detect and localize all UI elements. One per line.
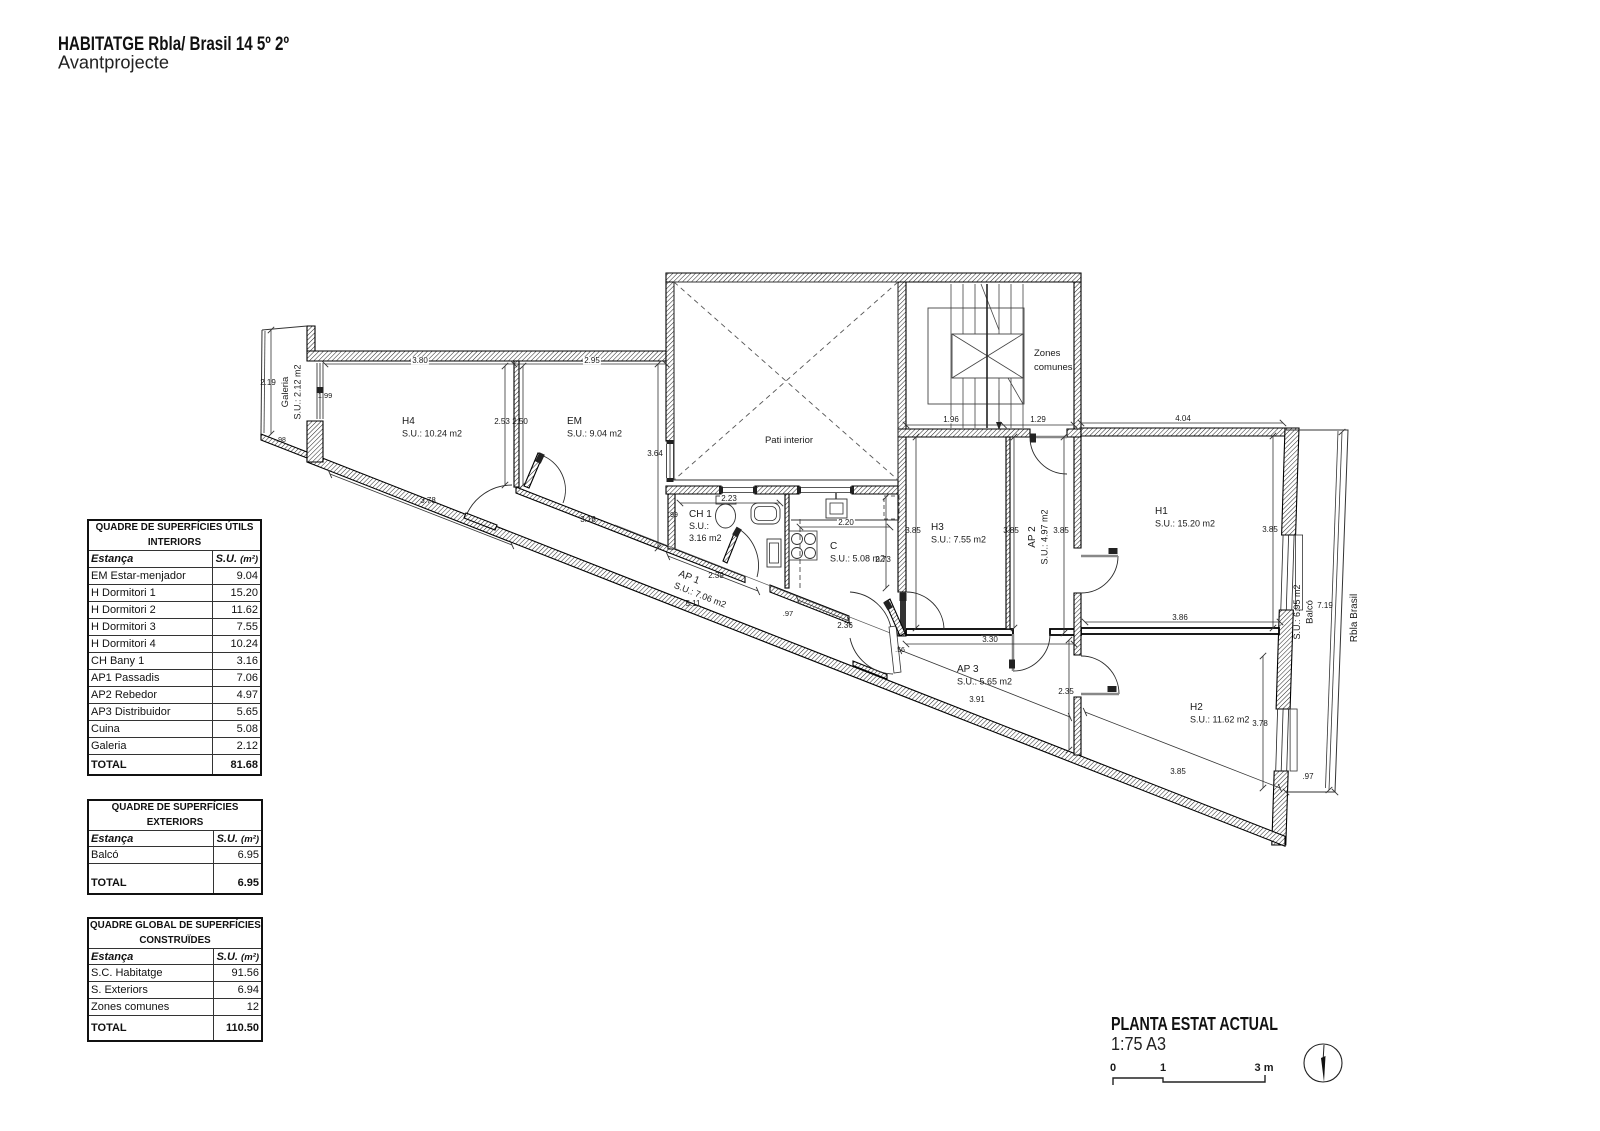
svg-text:.98: .98 — [276, 437, 286, 444]
svg-text:S.U.: 9.04 m2: S.U.: 9.04 m2 — [567, 429, 622, 439]
svg-text:.97: .97 — [1302, 772, 1314, 781]
svg-text:CH 1: CH 1 — [689, 509, 712, 520]
svg-text:Balcó: Balcó — [1305, 600, 1316, 624]
svg-text:S.U.: 4.97 m2: S.U.: 4.97 m2 — [1040, 509, 1050, 564]
svg-text:2.19: 2.19 — [260, 378, 276, 387]
svg-text:1.99: 1.99 — [318, 391, 333, 400]
svg-text:2.20: 2.20 — [838, 518, 854, 527]
svg-text:AP 2: AP 2 — [1027, 526, 1038, 548]
svg-text:2.95: 2.95 — [584, 356, 600, 365]
svg-text:4.04: 4.04 — [1175, 414, 1191, 423]
svg-text:.56: .56 — [895, 647, 905, 654]
svg-text:1:75 A3: 1:75 A3 — [1111, 1033, 1166, 1054]
svg-text:3.85: 3.85 — [1053, 526, 1069, 535]
svg-text:3.78: 3.78 — [1252, 719, 1268, 728]
svg-text:EM: EM — [567, 416, 582, 427]
svg-text:1.96: 1.96 — [943, 415, 959, 424]
svg-text:S.U.: 5.08 m2: S.U.: 5.08 m2 — [830, 554, 885, 564]
svg-text:3.16 m2: 3.16 m2 — [689, 533, 722, 543]
svg-text:2.53: 2.53 — [494, 417, 510, 426]
svg-text:3 m: 3 m — [1255, 1062, 1274, 1074]
svg-text:S.U.:: S.U.: — [689, 521, 709, 531]
svg-text:S.U.: 11.62 m2: S.U.: 11.62 m2 — [1190, 715, 1249, 725]
svg-text:comunes: comunes — [1034, 362, 1073, 373]
svg-text:Zones: Zones — [1034, 348, 1061, 359]
svg-text:3.64: 3.64 — [647, 449, 663, 458]
svg-text:0: 0 — [1110, 1062, 1116, 1074]
svg-text:Galeria: Galeria — [280, 376, 291, 407]
svg-text:.97: .97 — [783, 609, 793, 618]
svg-text:7.19: 7.19 — [1317, 601, 1333, 610]
svg-text:3.91: 3.91 — [969, 695, 985, 704]
svg-text:3.30: 3.30 — [982, 635, 998, 644]
svg-text:2.39: 2.39 — [708, 571, 724, 580]
svg-text:S.U.: 5.65 m2: S.U.: 5.65 m2 — [957, 677, 1012, 687]
svg-text:S.U.: 10.24 m2: S.U.: 10.24 m2 — [402, 429, 462, 439]
svg-text:S.U.: 2.12 m2: S.U.: 2.12 m2 — [293, 364, 303, 419]
svg-text:3.85: 3.85 — [1262, 525, 1278, 534]
svg-text:3.86: 3.86 — [1172, 613, 1188, 622]
svg-text:H3: H3 — [931, 522, 944, 533]
svg-text:Avantprojecte: Avantprojecte — [58, 53, 169, 73]
svg-text:3.16: 3.16 — [580, 515, 596, 524]
svg-text:1.29: 1.29 — [1030, 415, 1046, 424]
svg-text:1: 1 — [1160, 1062, 1166, 1074]
svg-text:AP 3: AP 3 — [957, 664, 979, 675]
svg-text:H2: H2 — [1190, 702, 1203, 713]
svg-text:3.85: 3.85 — [1170, 767, 1186, 776]
svg-text:3.85: 3.85 — [1003, 526, 1019, 535]
svg-text:H4: H4 — [402, 416, 415, 427]
svg-text:Rbla Brasil: Rbla Brasil — [1349, 594, 1360, 642]
svg-text:S.U.: 7.55 m2: S.U.: 7.55 m2 — [931, 535, 986, 545]
svg-text:2.36: 2.36 — [837, 621, 853, 630]
svg-text:2.35: 2.35 — [1058, 687, 1074, 696]
svg-text:3.80: 3.80 — [412, 356, 428, 365]
svg-text:C: C — [830, 541, 837, 552]
svg-text:S.U.: 15.20 m2: S.U.: 15.20 m2 — [1155, 519, 1215, 529]
svg-text:Pati interior: Pati interior — [765, 435, 813, 446]
svg-text:2.50: 2.50 — [512, 417, 528, 426]
svg-text:3.78: 3.78 — [420, 496, 436, 505]
svg-text:PLANTA ESTAT ACTUAL: PLANTA ESTAT ACTUAL — [1111, 1013, 1278, 1034]
svg-text:5.11: 5.11 — [686, 599, 702, 608]
svg-text:3.85: 3.85 — [905, 526, 921, 535]
svg-text:2.23: 2.23 — [721, 494, 737, 503]
svg-text:S.U.: 6.95 m2: S.U.: 6.95 m2 — [1292, 584, 1302, 639]
svg-text:.99: .99 — [668, 512, 678, 519]
svg-text:H1: H1 — [1155, 506, 1168, 517]
